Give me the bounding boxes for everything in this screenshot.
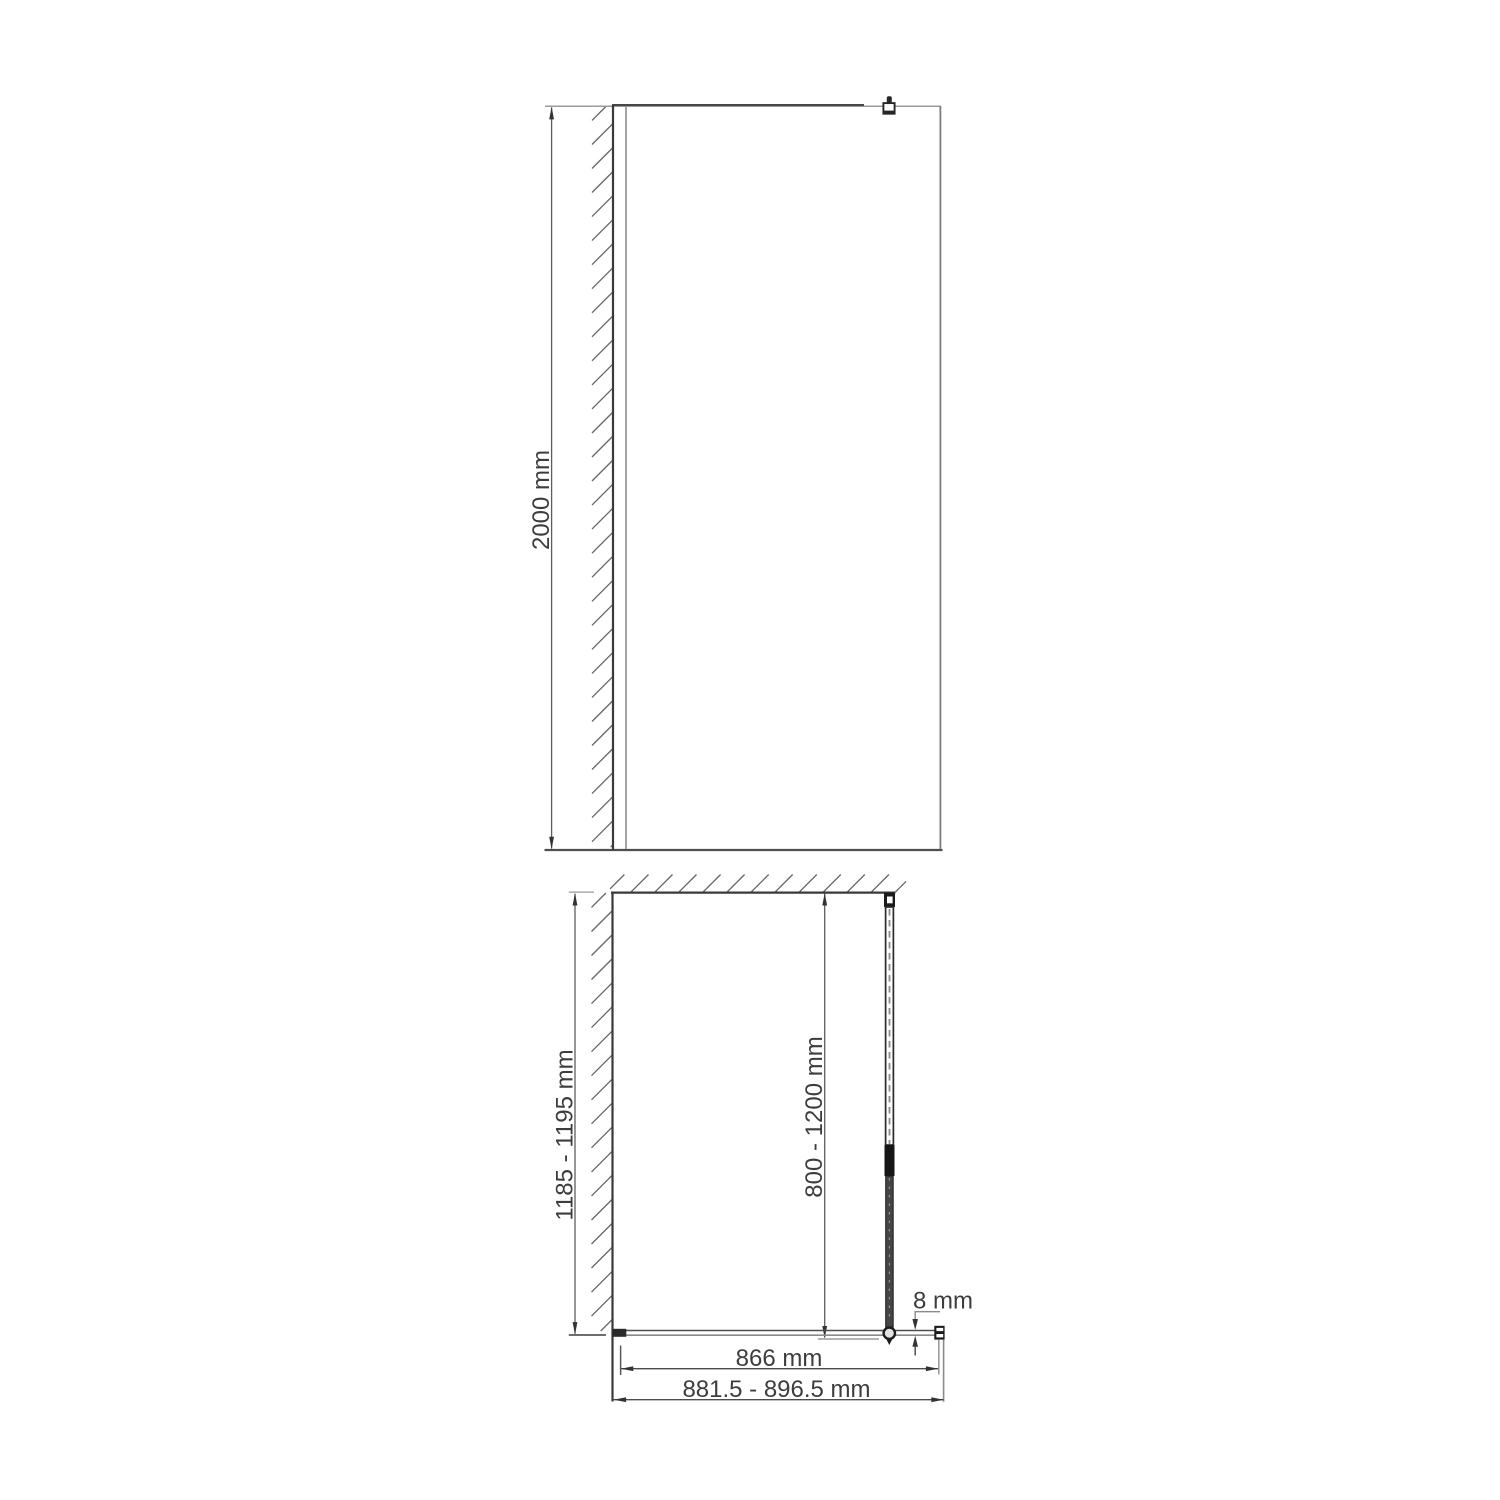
svg-text:1185 - 1195 mm: 1185 - 1195 mm xyxy=(551,1049,578,1220)
svg-text:800 - 1200 mm: 800 - 1200 mm xyxy=(801,1036,828,1197)
svg-text:2000 mm: 2000 mm xyxy=(528,450,555,550)
svg-text:866 mm: 866 mm xyxy=(736,1345,823,1372)
svg-text:8 mm: 8 mm xyxy=(913,1288,973,1315)
svg-text:881.5 - 896.5 mm: 881.5 - 896.5 mm xyxy=(682,1376,870,1403)
